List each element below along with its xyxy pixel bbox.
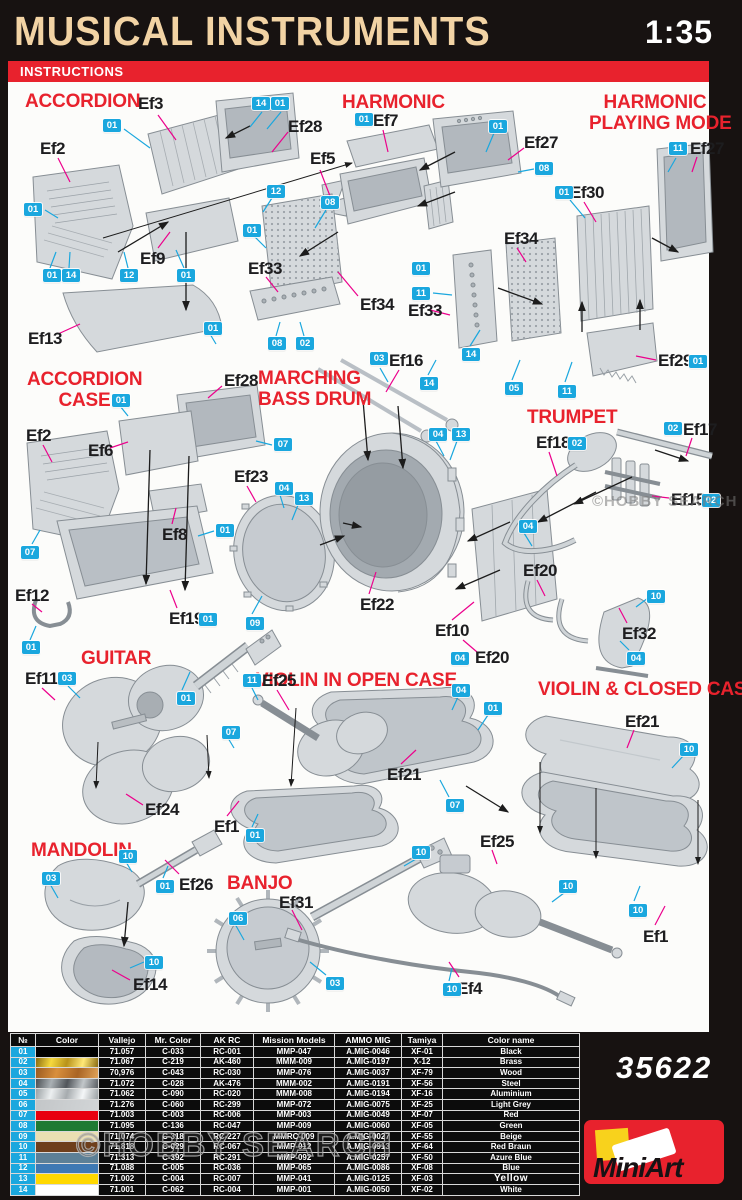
paint-code: A.MIG-0046 — [335, 1047, 402, 1058]
paint-code: XF-79 — [402, 1068, 443, 1079]
instruction-sheet: MUSICAL INSTRUMENTS 1:35 INSTRUCTIONS — [0, 0, 742, 1200]
color-callout-01: 01 — [204, 322, 222, 335]
color-callout-11: 11 — [558, 385, 576, 398]
color-callout-01: 01 — [412, 262, 430, 275]
color-callout-14: 14 — [252, 97, 270, 110]
color-callout-10: 10 — [559, 880, 577, 893]
color-callout-14: 14 — [62, 269, 80, 282]
paint-code: 71.276 — [99, 1099, 146, 1110]
watermark-bottom: ©HOBBY SEARCH — [76, 1126, 393, 1164]
paint-row-number: 03 — [11, 1068, 36, 1079]
miniart-logo: MiniArt — [584, 1120, 724, 1184]
paint-code: A.MIG-0125 — [335, 1174, 402, 1185]
paint-code: RC-006 — [201, 1110, 254, 1121]
paint-code: 70,976 — [99, 1068, 146, 1079]
paint-code: XF-50 — [402, 1152, 443, 1163]
color-callout-04: 04 — [452, 684, 470, 697]
color-callout-01: 01 — [689, 355, 707, 368]
color-callout-10: 10 — [443, 983, 461, 996]
paint-row-number: 09 — [11, 1131, 36, 1142]
paint-code: A.MIG-0197 — [335, 1057, 402, 1068]
color-name: Light Grey — [443, 1099, 580, 1110]
paint-code: A.MIG-0049 — [335, 1110, 402, 1121]
color-callout-04: 04 — [519, 520, 537, 533]
instructions-bar: INSTRUCTIONS — [8, 61, 709, 82]
paint-code: C-003 — [146, 1110, 201, 1121]
paint-code: XF-08 — [402, 1163, 443, 1174]
paint-code: XF-03 — [402, 1174, 443, 1185]
color-swatch — [36, 1185, 98, 1195]
paint-code: MMM-002 — [254, 1078, 335, 1089]
color-swatch — [36, 1111, 98, 1121]
color-callout-13: 13 — [295, 492, 313, 505]
part-label-ef1: Ef1 — [214, 818, 239, 835]
color-callout-03: 03 — [58, 672, 76, 685]
part-label-ef25: Ef25 — [262, 672, 296, 689]
color-callout-04: 04 — [627, 652, 645, 665]
color-callout-04: 04 — [429, 428, 447, 441]
part-label-ef18: Ef18 — [536, 434, 570, 451]
color-callout-01: 01 — [555, 186, 573, 199]
color-callout-01: 01 — [484, 702, 502, 715]
part-label-ef29: Ef29 — [658, 352, 692, 369]
brand-name: MiniArt — [593, 1152, 682, 1184]
color-callout-14: 14 — [462, 348, 480, 361]
paint-row-number: 13 — [11, 1174, 36, 1185]
part-label-ef32: Ef32 — [622, 625, 656, 642]
paint-table-row: 0370,976C-043RC-030MMP-076A.MIG-0037XF-7… — [11, 1068, 580, 1079]
paint-code: XF-56 — [402, 1078, 443, 1089]
paint-row-number: 12 — [11, 1163, 36, 1174]
paint-code: C-062 — [146, 1185, 201, 1196]
color-name: Wood — [443, 1068, 580, 1079]
paint-code: RC-007 — [201, 1174, 254, 1185]
color-callout-01: 01 — [22, 641, 40, 654]
paint-code: A.MIG-0194 — [335, 1089, 402, 1100]
section-title-accordion: ACCORDION — [25, 92, 140, 113]
paint-code: 71.088 — [99, 1163, 146, 1174]
paint-code: 71.062 — [99, 1089, 146, 1100]
paint-code: A.MIG-0191 — [335, 1078, 402, 1089]
paint-table-row: 0771.003C-003RC-006MMP-003A.MIG-0049XF-0… — [11, 1110, 580, 1121]
color-callout-02: 02 — [568, 437, 586, 450]
color-callout-01: 01 — [489, 120, 507, 133]
paint-code: RC-020 — [201, 1089, 254, 1100]
paint-table-row: 1471.001C-062RC-004MMP-001A.MIG-0050XF-0… — [11, 1185, 580, 1196]
color-callout-03: 03 — [370, 352, 388, 365]
paint-table: №ColorVallejoMr. ColorAK RCMission Model… — [10, 1033, 580, 1196]
paint-row-number: 08 — [11, 1121, 36, 1132]
color-name: Red Braun — [443, 1142, 580, 1153]
product-number: 35622 — [616, 1050, 712, 1086]
section-title-harmonic-playing-mode: HARMONICPLAYING MODE — [589, 93, 721, 134]
paint-code: XF-07 — [402, 1110, 443, 1121]
paint-table-row: 1271.088C-005RC-036MMP-065A.MIG-0086XF-0… — [11, 1163, 580, 1174]
color-callout-01: 01 — [43, 269, 61, 282]
paint-code: RC-299 — [201, 1099, 254, 1110]
part-label-ef28: Ef28 — [288, 118, 322, 135]
color-name: Azure Blue — [443, 1152, 580, 1163]
color-callout-12: 12 — [267, 185, 285, 198]
color-callout-11: 11 — [412, 287, 430, 300]
color-callout-10: 10 — [145, 956, 163, 969]
diagram-sheet — [8, 82, 709, 1032]
part-label-ef26: Ef26 — [179, 876, 213, 893]
paint-code: RC-001 — [201, 1047, 254, 1058]
paint-code: C-060 — [146, 1099, 201, 1110]
paint-code: XF-16 — [402, 1089, 443, 1100]
color-name: Red — [443, 1110, 580, 1121]
color-callout-01: 01 — [355, 113, 373, 126]
paint-code: XF-01 — [402, 1047, 443, 1058]
paint-table-row: 0671.276C-060RC-299MMP-072A.MIG-0075XF-2… — [11, 1099, 580, 1110]
paint-table-header: Vallejo — [99, 1034, 146, 1047]
paint-row-number: 14 — [11, 1185, 36, 1196]
paint-code: XF-05 — [402, 1121, 443, 1132]
watermark-right: ©HOBBY SEARCH — [592, 493, 737, 510]
part-label-ef21: Ef21 — [387, 766, 421, 783]
paint-code: X-12 — [402, 1057, 443, 1068]
paint-row-number: 07 — [11, 1110, 36, 1121]
color-callout-10: 10 — [412, 846, 430, 859]
part-label-ef21: Ef21 — [625, 713, 659, 730]
paint-code: C-005 — [146, 1163, 201, 1174]
part-label-ef28: Ef28 — [224, 372, 258, 389]
part-label-ef17: Ef17 — [683, 421, 717, 438]
color-name: Steel — [443, 1078, 580, 1089]
color-callout-01: 01 — [177, 692, 195, 705]
color-name: Blue — [443, 1163, 580, 1174]
color-swatch-cell — [36, 1174, 99, 1185]
part-label-ef24: Ef24 — [145, 801, 179, 818]
color-callout-04: 04 — [275, 482, 293, 495]
paint-code: MMM-008 — [254, 1089, 335, 1100]
paint-code: A.MIG-0037 — [335, 1068, 402, 1079]
part-label-ef14: Ef14 — [133, 976, 167, 993]
paint-table-row: 0171.057C-033RC-001MMP-047A.MIG-0046XF-0… — [11, 1047, 580, 1058]
paint-table-header: Tamiya — [402, 1034, 443, 1047]
paint-code: MMP-047 — [254, 1047, 335, 1058]
color-callout-03: 03 — [42, 872, 60, 885]
section-title-violin-closed-case: VIOLIN & CLOSED CASE — [538, 680, 742, 701]
color-callout-05: 05 — [505, 382, 523, 395]
paint-code: XF-64 — [402, 1142, 443, 1153]
paint-code: MMP-072 — [254, 1099, 335, 1110]
paint-code: MMP-041 — [254, 1174, 335, 1185]
color-callout-03: 03 — [326, 977, 344, 990]
part-label-ef8: Ef8 — [162, 526, 187, 543]
color-swatch — [36, 1058, 98, 1068]
part-label-ef19: Ef19 — [169, 610, 203, 627]
color-callout-12: 12 — [120, 269, 138, 282]
color-swatch-cell — [36, 1068, 99, 1079]
paint-table-header: AMMO MIG — [335, 1034, 402, 1047]
paint-code: 71.067 — [99, 1057, 146, 1068]
color-callout-01: 01 — [24, 203, 42, 216]
paint-code: 71.003 — [99, 1110, 146, 1121]
color-name: Green — [443, 1121, 580, 1132]
part-label-ef6: Ef6 — [88, 442, 113, 459]
color-callout-10: 10 — [647, 590, 665, 603]
paint-code: A.MIG-0086 — [335, 1163, 402, 1174]
color-callout-01: 01 — [246, 829, 264, 842]
color-callout-01: 01 — [177, 269, 195, 282]
part-label-ef1: Ef1 — [643, 928, 668, 945]
color-callout-10: 10 — [119, 850, 137, 863]
part-label-ef27: Ef27 — [524, 134, 558, 151]
section-title-marching-bass-drum: MARCHINGBASS DRUM — [258, 369, 360, 410]
part-label-ef2: Ef2 — [26, 427, 51, 444]
section-title-trumpet: TRUMPET — [527, 408, 617, 429]
part-label-ef23: Ef23 — [234, 468, 268, 485]
color-callout-11: 11 — [243, 674, 261, 687]
paint-code: C-028 — [146, 1078, 201, 1089]
color-name: Black — [443, 1047, 580, 1058]
paint-table-row: 0471.072C-028AK-476MMM-002A.MIG-0191XF-5… — [11, 1078, 580, 1089]
color-callout-01: 01 — [156, 880, 174, 893]
color-callout-01: 01 — [243, 224, 261, 237]
part-label-ef33: Ef33 — [408, 302, 442, 319]
color-callout-07: 07 — [21, 546, 39, 559]
part-label-ef20: Ef20 — [475, 649, 509, 666]
paint-code: A.MIG-0075 — [335, 1099, 402, 1110]
color-callout-13: 13 — [452, 428, 470, 441]
color-swatch-cell — [36, 1163, 99, 1174]
color-swatch-cell — [36, 1089, 99, 1100]
paint-code: 71.072 — [99, 1078, 146, 1089]
color-callout-09: 09 — [246, 617, 264, 630]
part-label-ef12: Ef12 — [15, 587, 49, 604]
color-swatch-cell — [36, 1047, 99, 1058]
color-callout-02: 02 — [296, 337, 314, 350]
color-callout-07: 07 — [222, 726, 240, 739]
part-label-ef34: Ef34 — [504, 230, 538, 247]
color-callout-06: 06 — [229, 912, 247, 925]
paint-row-number: 01 — [11, 1047, 36, 1058]
color-callout-01: 01 — [199, 613, 217, 626]
color-swatch — [36, 1089, 98, 1099]
paint-table-header: № — [11, 1034, 36, 1047]
paint-code: 71.001 — [99, 1185, 146, 1196]
paint-table-header: Mr. Color — [146, 1034, 201, 1047]
paint-row-number: 05 — [11, 1089, 36, 1100]
color-swatch-cell — [36, 1078, 99, 1089]
color-name: Brass — [443, 1057, 580, 1068]
paint-code: RC-036 — [201, 1163, 254, 1174]
paint-code: MMM-009 — [254, 1057, 335, 1068]
part-label-ef20: Ef20 — [523, 562, 557, 579]
color-callout-08: 08 — [535, 162, 553, 175]
color-swatch — [36, 1174, 98, 1184]
color-swatch-cell — [36, 1110, 99, 1121]
color-swatch — [36, 1047, 98, 1057]
paint-code: C-004 — [146, 1174, 201, 1185]
color-callout-01: 01 — [103, 119, 121, 132]
color-callout-01: 01 — [112, 394, 130, 407]
paint-table-header: Color — [36, 1034, 99, 1047]
paint-code: MMP-065 — [254, 1163, 335, 1174]
paint-table-header: Color name — [443, 1034, 580, 1047]
part-label-ef31: Ef31 — [279, 894, 313, 911]
part-label-ef13: Ef13 — [28, 330, 62, 347]
section-title-banjo: BANJO — [227, 874, 293, 895]
paint-code: MMP-076 — [254, 1068, 335, 1079]
paint-row-number: 02 — [11, 1057, 36, 1068]
paint-row-number: 10 — [11, 1142, 36, 1153]
scale-badge: 1:35 — [645, 14, 713, 51]
color-name: Aluminium — [443, 1089, 580, 1100]
color-callout-01: 01 — [216, 524, 234, 537]
color-callout-14: 14 — [420, 377, 438, 390]
paint-code: AK-460 — [201, 1057, 254, 1068]
color-callout-07: 07 — [274, 438, 292, 451]
paint-code: 71.057 — [99, 1047, 146, 1058]
part-label-ef10: Ef10 — [435, 622, 469, 639]
color-callout-07: 07 — [446, 799, 464, 812]
color-swatch — [36, 1164, 98, 1174]
paint-table-row: 0271.067C-219AK-460MMM-009A.MIG-0197X-12… — [11, 1057, 580, 1068]
paint-code: MMP-001 — [254, 1185, 335, 1196]
color-callout-01: 01 — [271, 97, 289, 110]
part-label-ef2: Ef2 — [40, 140, 65, 157]
part-label-ef27: Ef27 — [690, 140, 724, 157]
part-label-ef11: Ef11 — [25, 670, 58, 687]
color-callout-02: 02 — [664, 422, 682, 435]
paint-table-header: AK RC — [201, 1034, 254, 1047]
section-title-guitar: GUITAR — [81, 649, 151, 670]
paint-code: XF-02 — [402, 1185, 443, 1196]
color-swatch-cell — [36, 1185, 99, 1196]
part-label-ef9: Ef9 — [140, 250, 165, 267]
paint-table-row: 1371.002C-004RC-007MMP-041A.MIG-0125XF-0… — [11, 1174, 580, 1185]
part-label-ef16: Ef16 — [389, 352, 423, 369]
paint-code: RC-004 — [201, 1185, 254, 1196]
color-callout-04: 04 — [451, 652, 469, 665]
part-label-ef25: Ef25 — [480, 833, 514, 850]
color-name: Yellow — [443, 1174, 580, 1185]
paint-table-header: Mission Models — [254, 1034, 335, 1047]
paint-table-row: 0571.062C-090RC-020MMM-008A.MIG-0194XF-1… — [11, 1089, 580, 1100]
color-callout-08: 08 — [321, 196, 339, 209]
paint-code: C-219 — [146, 1057, 201, 1068]
color-swatch-cell — [36, 1057, 99, 1068]
part-label-ef22: Ef22 — [360, 596, 394, 613]
paint-code: 71.002 — [99, 1174, 146, 1185]
paint-code: MMP-003 — [254, 1110, 335, 1121]
section-title-mandolin: MANDOLIN — [31, 841, 132, 862]
page-title: MUSICAL INSTRUMENTS — [14, 8, 491, 55]
paint-code: C-033 — [146, 1047, 201, 1058]
part-label-ef30: Ef30 — [570, 184, 604, 201]
paint-row-number: 06 — [11, 1099, 36, 1110]
part-label-ef5: Ef5 — [310, 150, 335, 167]
paint-code: C-043 — [146, 1068, 201, 1079]
part-label-ef33: Ef33 — [248, 260, 282, 277]
paint-code: C-090 — [146, 1089, 201, 1100]
part-label-ef3: Ef3 — [138, 95, 163, 112]
color-callout-10: 10 — [629, 904, 647, 917]
part-label-ef7: Ef7 — [373, 112, 398, 129]
paint-code: RC-030 — [201, 1068, 254, 1079]
part-label-ef34: Ef34 — [360, 296, 394, 313]
color-swatch — [36, 1068, 98, 1078]
color-swatch — [36, 1079, 98, 1089]
color-swatch — [36, 1100, 98, 1110]
color-name: Beige — [443, 1131, 580, 1142]
color-callout-10: 10 — [680, 743, 698, 756]
color-callout-08: 08 — [268, 337, 286, 350]
color-callout-11: 11 — [669, 142, 687, 155]
paint-row-number: 04 — [11, 1078, 36, 1089]
paint-row-number: 11 — [11, 1152, 36, 1163]
paint-code: AK-476 — [201, 1078, 254, 1089]
color-name: White — [443, 1185, 580, 1196]
paint-code: A.MIG-0050 — [335, 1185, 402, 1196]
paint-code: XF-25 — [402, 1099, 443, 1110]
color-swatch-cell — [36, 1099, 99, 1110]
paint-code: XF-55 — [402, 1131, 443, 1142]
